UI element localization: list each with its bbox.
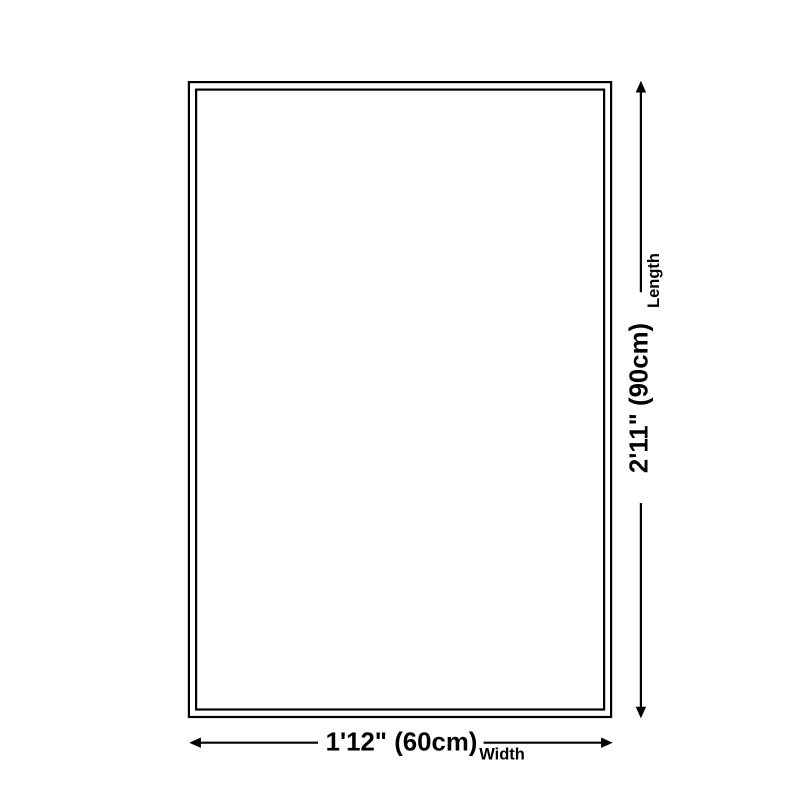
svg-text:2'11" (90cm): 2'11" (90cm) (625, 323, 653, 473)
svg-text:Width: Width (479, 746, 525, 764)
svg-text:Length: Length (645, 253, 663, 308)
svg-text:1'12" (60cm): 1'12" (60cm) (326, 729, 478, 757)
